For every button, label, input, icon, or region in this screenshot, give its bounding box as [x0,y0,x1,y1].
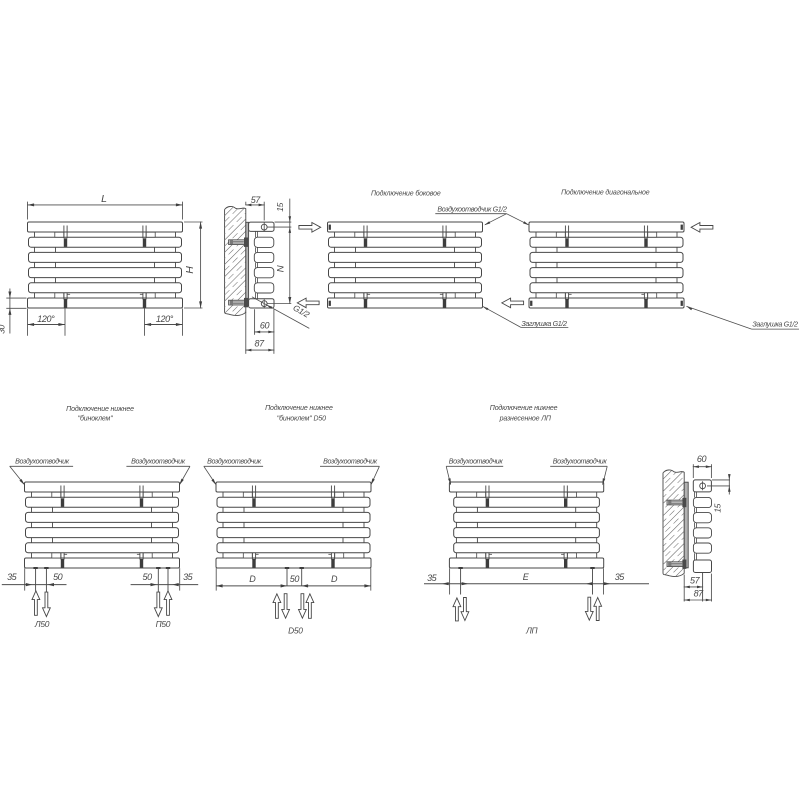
svg-text:57: 57 [251,195,262,205]
svg-text:D: D [249,574,256,584]
svg-text:Подключение нижнее: Подключение нижнее [265,404,333,412]
svg-text:15: 15 [275,202,285,211]
svg-text:Воздухоотводчик: Воздухоотводчик [553,457,608,465]
svg-text:H: H [184,266,196,274]
svg-text:Подключение нижнее: Подключение нижнее [490,404,558,412]
svg-text:120°: 120° [37,314,55,324]
svg-text:Л50: Л50 [34,619,50,629]
svg-text:D50: D50 [288,626,303,636]
svg-text:35: 35 [183,572,194,582]
svg-text:60: 60 [697,454,707,464]
svg-text:50: 50 [53,572,63,582]
svg-text:15: 15 [713,503,723,512]
svg-text:П50: П50 [156,619,171,629]
svg-text:Заглушка G1/2: Заглушка G1/2 [521,320,567,328]
svg-text:Воздухоотводчик: Воздухоотводчик [323,457,378,465]
svg-text:D: D [331,574,338,584]
svg-text:35: 35 [427,573,438,583]
svg-text:57: 57 [690,576,701,586]
svg-text:Воздухоотводчик: Воздухоотводчик [15,457,70,465]
svg-text:Подключение боковое: Подключение боковое [371,189,441,197]
svg-text:Воздухоотводчик G1/2: Воздухоотводчик G1/2 [437,205,507,213]
svg-text:35: 35 [615,572,626,582]
svg-text:Подключение нижнее: Подключение нижнее [66,405,134,413]
svg-text:30: 30 [0,325,7,334]
svg-text:Подключение диагональное: Подключение диагональное [561,189,650,197]
svg-text:L: L [101,193,107,205]
svg-text:ЛП: ЛП [525,626,538,636]
svg-text:87: 87 [694,589,705,599]
svg-text:"биноклем" D50: "биноклем" D50 [277,415,326,423]
svg-text:Заглушка G1/2: Заглушка G1/2 [752,320,798,328]
svg-text:50: 50 [290,574,300,584]
svg-text:Воздухоотводчик: Воздухоотводчик [131,457,186,465]
svg-text:Воздухоотводчик: Воздухоотводчик [207,457,262,465]
svg-text:50: 50 [142,572,152,582]
svg-text:Воздухоотводчик: Воздухоотводчик [449,457,504,465]
svg-text:120°: 120° [156,314,174,324]
svg-text:E: E [523,572,530,582]
svg-text:35: 35 [7,572,18,582]
svg-text:60: 60 [260,321,270,331]
svg-text:N: N [275,265,286,272]
svg-text:разнесенное ЛП: разнесенное ЛП [499,416,552,423]
svg-text:"биноклем": "биноклем" [78,415,114,423]
svg-text:87: 87 [254,339,265,349]
